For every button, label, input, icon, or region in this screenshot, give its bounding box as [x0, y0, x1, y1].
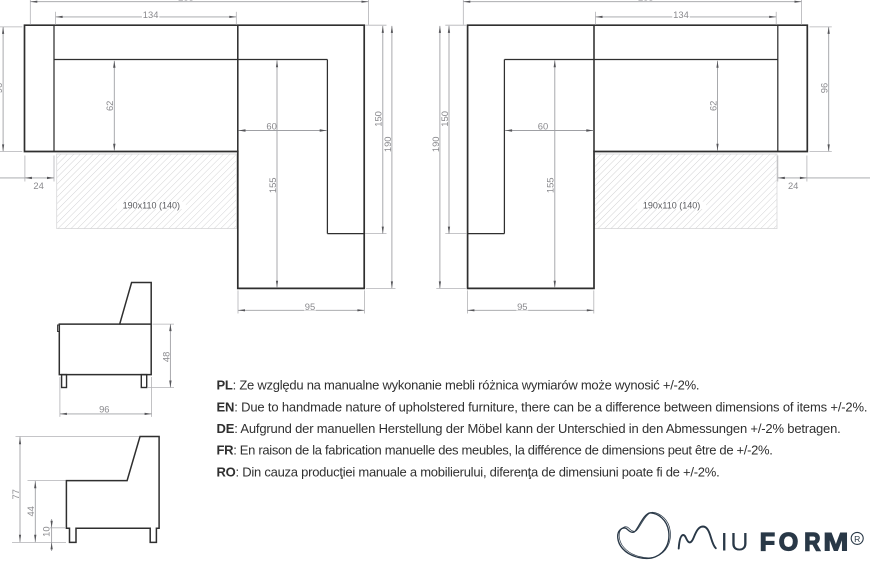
svg-text:RO: Din cauza producţiei manua: RO: Din cauza producţiei manuale a mobil… — [217, 464, 720, 479]
svg-text:150: 150 — [373, 111, 384, 127]
svg-text:62: 62 — [104, 101, 115, 111]
svg-text:62: 62 — [707, 101, 718, 111]
svg-text:O: O — [779, 528, 798, 556]
svg-text:190x110 (140): 190x110 (140) — [643, 200, 700, 210]
svg-text:190: 190 — [382, 136, 393, 152]
svg-text:95: 95 — [517, 301, 527, 312]
svg-text:190x110 (140): 190x110 (140) — [123, 200, 180, 210]
svg-text:PL: Ze względu na manualne wyk: PL: Ze względu na manualne wykonanie meb… — [217, 378, 700, 393]
svg-text:190: 190 — [430, 136, 441, 152]
svg-text:134: 134 — [673, 9, 689, 20]
svg-text:F: F — [760, 528, 775, 556]
svg-text:48: 48 — [160, 352, 171, 362]
svg-text:24: 24 — [33, 180, 43, 191]
svg-text:253: 253 — [638, 0, 654, 3]
svg-text:FR: En raison de la fabricatio: FR: En raison de la fabrication manuelle… — [217, 443, 773, 458]
svg-text:44: 44 — [25, 506, 36, 516]
svg-text:96: 96 — [819, 83, 830, 93]
svg-text:150: 150 — [439, 111, 450, 127]
svg-text:155: 155 — [545, 177, 556, 193]
svg-text:77: 77 — [10, 489, 21, 499]
svg-text:R: R — [854, 534, 860, 544]
svg-text:253: 253 — [178, 0, 194, 3]
svg-text:EN: Due to handmade nature of: EN: Due to handmade nature of upholstere… — [217, 399, 868, 414]
svg-text:I: I — [721, 528, 728, 556]
svg-text:60: 60 — [538, 121, 548, 132]
svg-text:155: 155 — [267, 177, 278, 193]
svg-text:U: U — [730, 528, 748, 556]
svg-text:M: M — [823, 528, 848, 556]
svg-text:60: 60 — [266, 121, 276, 132]
svg-text:R: R — [804, 528, 820, 556]
svg-text:24: 24 — [788, 180, 798, 191]
svg-text:96: 96 — [99, 404, 109, 415]
svg-text:134: 134 — [143, 9, 159, 20]
svg-text:10: 10 — [40, 526, 51, 536]
svg-text:96: 96 — [0, 83, 4, 93]
svg-text:DE: Aufgrund der manuellen Her: DE: Aufgrund der manuellen Herstellung d… — [217, 421, 841, 436]
svg-text:95: 95 — [305, 301, 315, 312]
